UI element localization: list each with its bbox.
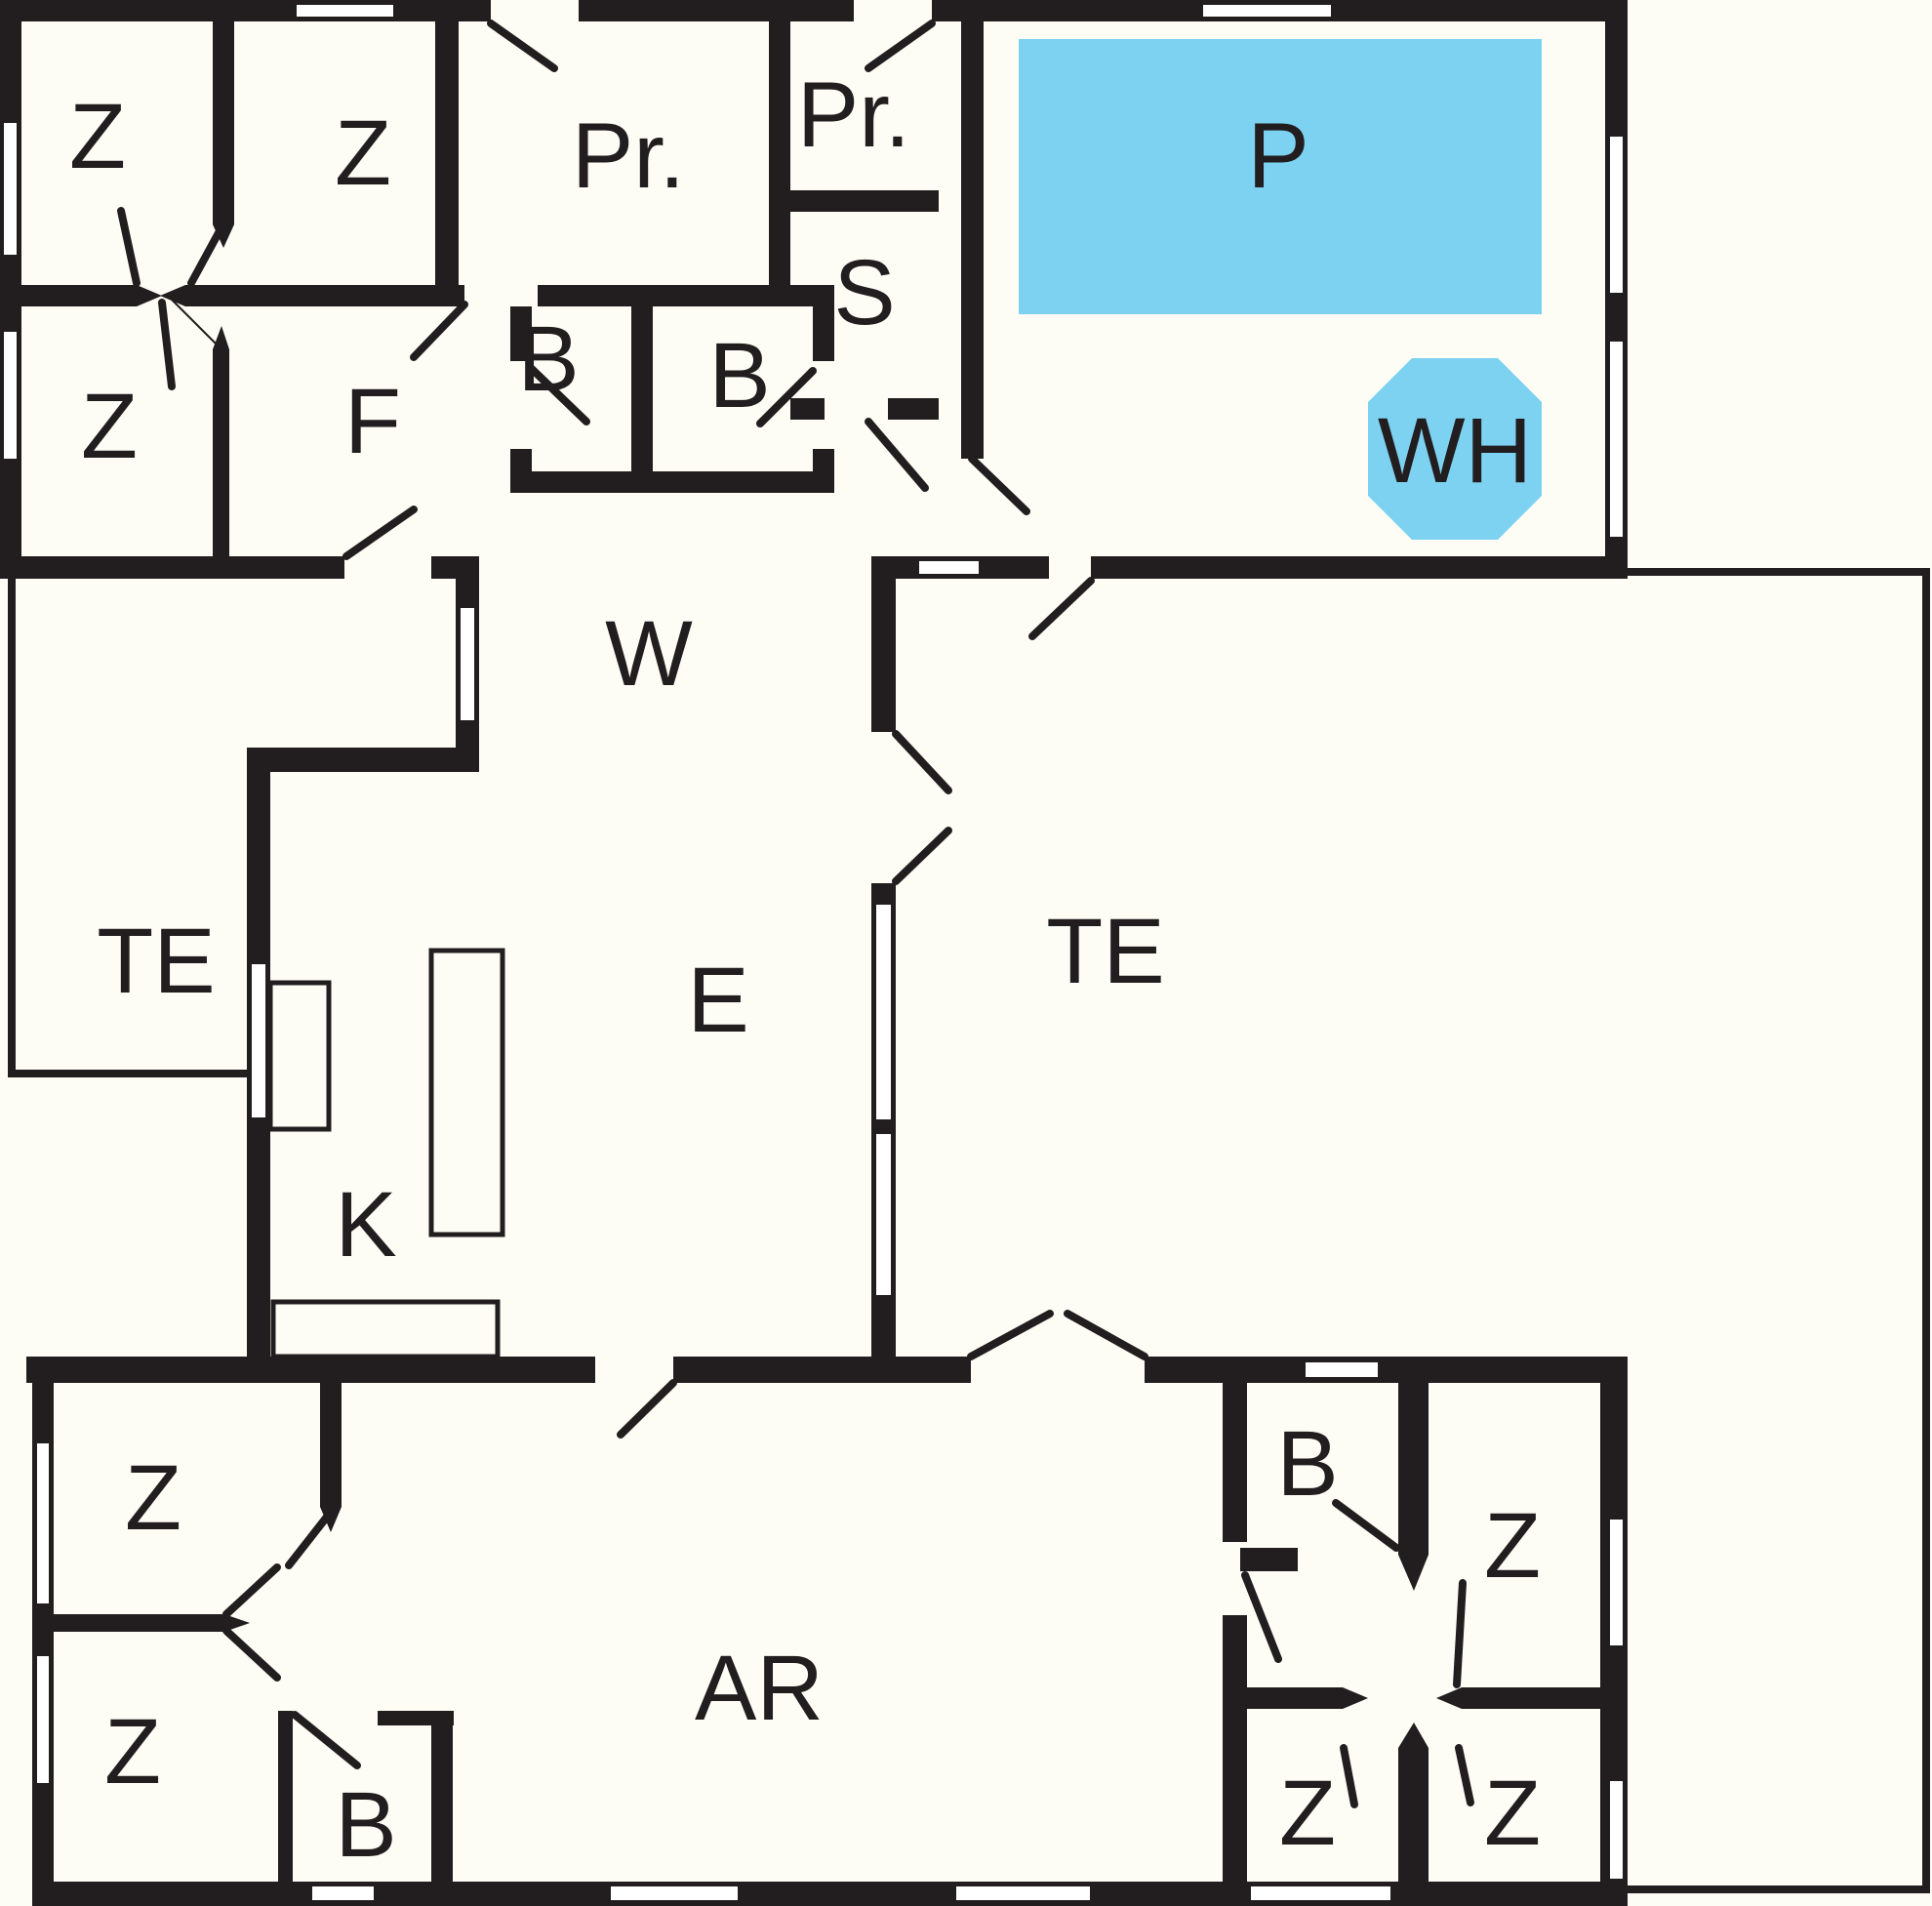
room-label-activity-room: AR [695,1637,824,1740]
window [37,1656,49,1783]
window [297,5,393,17]
window [252,964,265,1117]
room-label-bedroom-5: Z [104,1700,161,1804]
wall [185,285,464,306]
wall [871,883,896,905]
room-label-shower-1: Pr. [572,104,685,208]
floorplan-page: ZZPr.Pr.SPWHZFBBWTEKETEARZZBBZZZ [0,0,1932,1906]
wall [431,556,456,579]
room-label-whirlpool: WH [1378,399,1532,503]
wall [1240,1548,1298,1571]
wall [1091,556,1628,579]
wall [54,1614,224,1632]
room-label-kitchen: K [335,1173,396,1277]
wall [431,1711,453,1882]
wall [790,398,825,420]
window [919,561,979,574]
wall [1247,1687,1343,1709]
room-label-hall: F [344,370,401,473]
room-label-bedroom-3: Z [81,375,138,478]
window [1610,1781,1623,1879]
room-label-terrace-left: TE [97,910,215,1013]
wall [1462,1687,1605,1709]
wall [888,398,939,420]
wall [1398,1748,1429,1882]
wall [247,748,479,772]
room-label-living-room: E [687,949,748,1052]
wall [538,285,834,306]
wall [790,190,939,212]
window [1610,1520,1623,1645]
wall [1223,1615,1247,1882]
window [461,608,474,720]
window [312,1886,374,1900]
room-label-pool-room: P [1247,104,1308,208]
wall [673,1357,971,1383]
room-label-bath-2: B [708,324,770,427]
room-label-bedroom-7: Z [1279,1762,1336,1865]
wall [813,306,834,361]
room-label-terrace-right: TE [1046,900,1164,1003]
wall [320,1383,342,1507]
window [956,1886,1090,1900]
wall [579,0,854,21]
wall [21,285,137,306]
floorplan-svg: ZZPr.Pr.SPWHZFBBWTEKETEARZZBBZZZ [0,0,1932,1906]
wall [278,1711,293,1882]
wall [0,0,21,579]
window [1203,5,1331,17]
wall [769,21,790,285]
wall [213,349,229,556]
room-label-sauna: S [833,241,895,345]
room-label-bath-4: B [1276,1412,1338,1516]
wall [32,1357,54,1906]
terrace-boundary [1627,1886,1930,1893]
window [1251,1886,1390,1900]
wall [1223,1383,1247,1542]
wall [871,1119,896,1134]
window [4,332,17,459]
wall [631,306,653,493]
terrace-boundary [8,579,16,1077]
wall [10,0,491,21]
window [4,123,17,255]
window [876,905,891,1119]
wall [1398,1383,1429,1555]
room-label-bedroom-1: Z [69,85,126,188]
wall [510,471,834,493]
room-label-bath-3: B [335,1773,396,1877]
room-label-bedroom-6: Z [1484,1494,1541,1598]
room-label-hallway: W [605,602,693,706]
window [1610,137,1623,293]
room-label-bedroom-4: Z [125,1446,181,1550]
wall [871,556,896,732]
room-label-shower-2: Pr. [797,63,910,167]
window [37,1443,49,1603]
terrace-boundary [8,1070,247,1077]
wall [0,556,344,579]
room-label-bath-1: B [517,307,579,411]
floorplan-canvas: ZZPr.Pr.SPWHZFBBWTEKETEARZZBBZZZ [0,0,1932,1906]
window [1610,342,1623,537]
room-label-bedroom-8: Z [1484,1762,1541,1865]
window [611,1886,738,1900]
wall [961,21,984,459]
terrace-boundary [1627,568,1930,576]
room-label-bedroom-2: Z [335,101,391,205]
wall [1145,1357,1628,1383]
wall [435,21,459,285]
window [876,1134,891,1295]
window [1306,1362,1378,1377]
terrace-boundary [1922,568,1930,1893]
wall [26,1357,595,1383]
wall [213,21,234,224]
